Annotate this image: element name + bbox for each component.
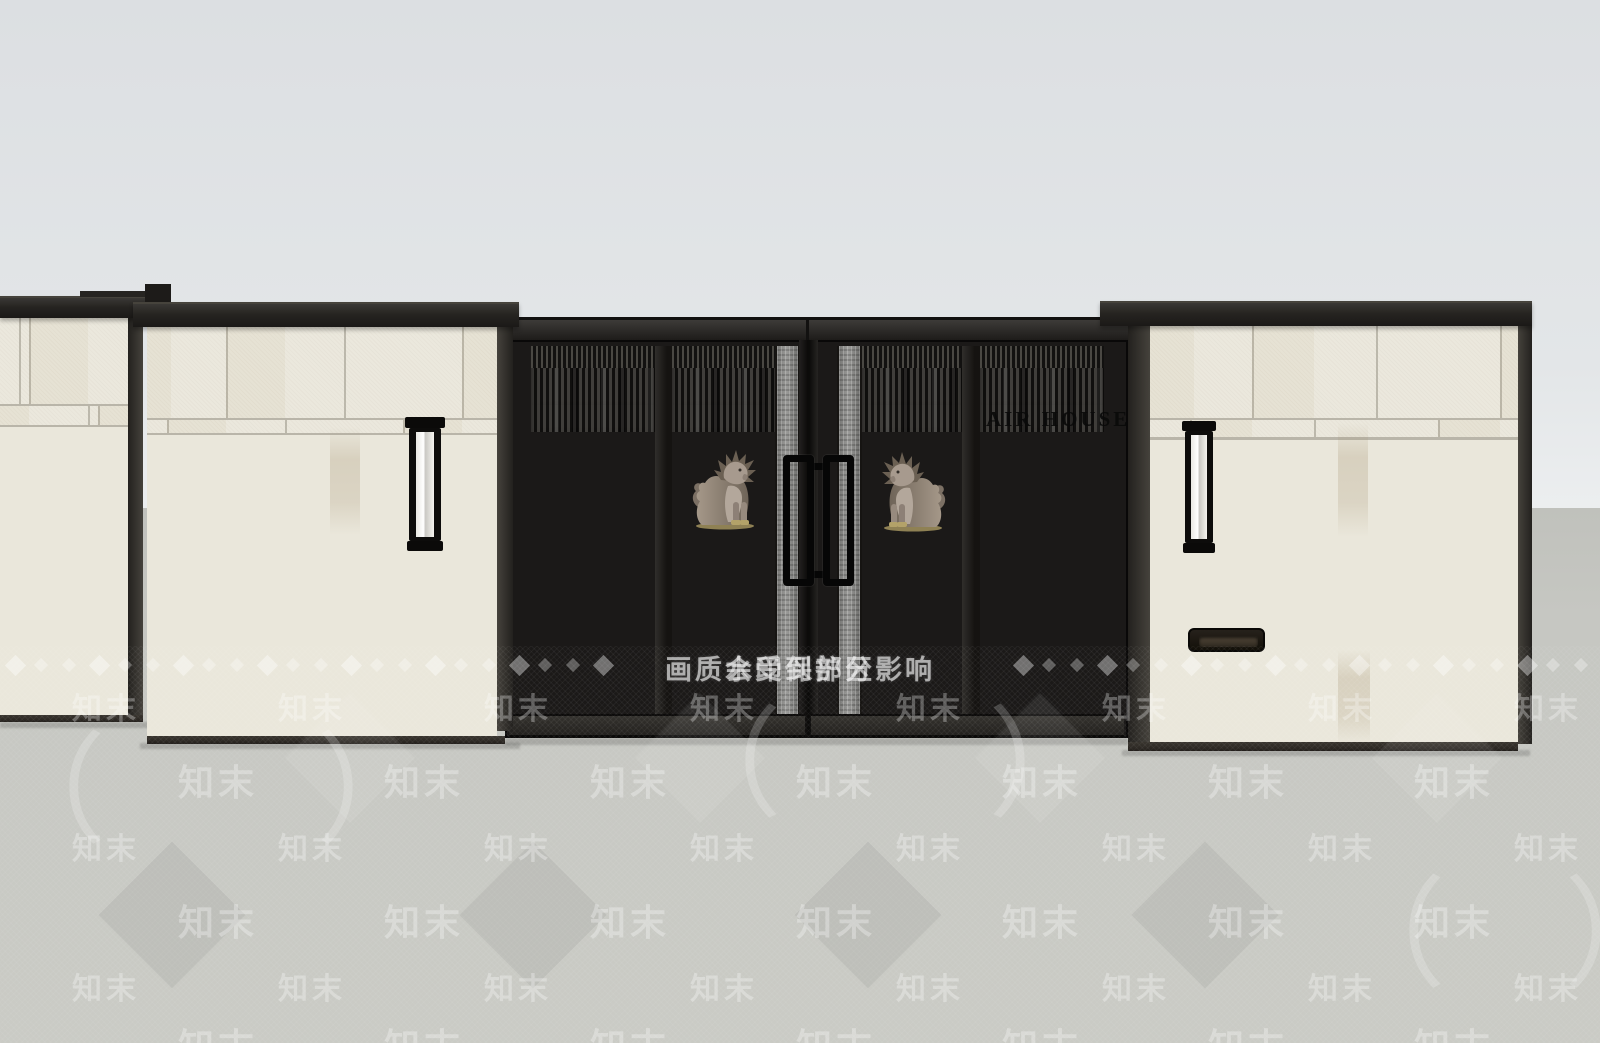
gate-bottom-rail-left	[509, 714, 805, 738]
gate-bottom-rail-right	[811, 714, 1124, 738]
pillar-right-shadow	[1122, 750, 1530, 756]
gate-fine-slats	[672, 346, 775, 368]
gate-fine-slats	[531, 346, 655, 368]
pillar-left-weathering	[330, 427, 360, 535]
stone-tile-row	[147, 327, 497, 420]
mail-slot-opening	[1199, 636, 1258, 647]
pillar-left-cap-post	[145, 284, 171, 304]
gate-fine-slats	[980, 346, 1104, 368]
lamp-glow	[416, 432, 434, 537]
gate-handle-left[interactable]	[783, 455, 814, 586]
pillar-right-weathering-top	[1338, 423, 1368, 537]
scene-render: AIR HOUSE 知末知末知末知末知末知末知末知末知末知末知末知末知末知末知末…	[0, 0, 1600, 1043]
pillar-right-side-outer	[1518, 326, 1532, 744]
boundary-wall-left-shadow	[0, 722, 150, 728]
gate-beam-split	[806, 317, 809, 340]
pillar-right-cap	[1100, 301, 1532, 326]
lamp-top-cap	[405, 417, 445, 428]
gate-mullion-left	[655, 346, 672, 716]
pillar-left-shadow	[140, 743, 520, 749]
wall-lamp-right	[1182, 421, 1216, 553]
lamp-glow	[1191, 435, 1207, 539]
boundary-wall-left-base	[0, 715, 143, 722]
gate-top-beam	[505, 317, 1128, 340]
pillar-right-side-inner	[1128, 326, 1150, 744]
boundary-wall-cap-step	[80, 291, 148, 297]
lamp-bottom-cap	[407, 541, 443, 551]
lion-statue-left	[688, 446, 760, 530]
stone-tile-row	[0, 318, 128, 406]
lamp-top-cap	[1182, 421, 1216, 431]
lamp-bottom-cap	[1183, 543, 1215, 553]
mail-slot[interactable]	[1188, 628, 1265, 652]
gate-slats-d	[980, 346, 1104, 716]
pillar-left-cap	[133, 302, 519, 327]
lion-statue-right	[878, 448, 950, 532]
pillar-right-weathering-bottom	[1338, 650, 1370, 744]
gate-handle-right[interactable]	[823, 455, 854, 586]
wall-lamp-left	[405, 417, 445, 551]
boundary-wall-left	[0, 318, 128, 718]
gate-mullion-right	[962, 346, 980, 716]
gate-slats-a	[531, 346, 655, 716]
gate-ground-shadow	[505, 738, 1128, 745]
gate-sign: AIR HOUSE	[986, 407, 1120, 433]
stone-tile-row	[1150, 326, 1518, 420]
pillar-left-side	[497, 327, 513, 731]
gate-slats-b	[672, 346, 775, 716]
boundary-wall-left-cap	[0, 296, 148, 318]
boundary-wall-left-side	[128, 318, 143, 718]
gate-fine-slats	[862, 346, 962, 368]
